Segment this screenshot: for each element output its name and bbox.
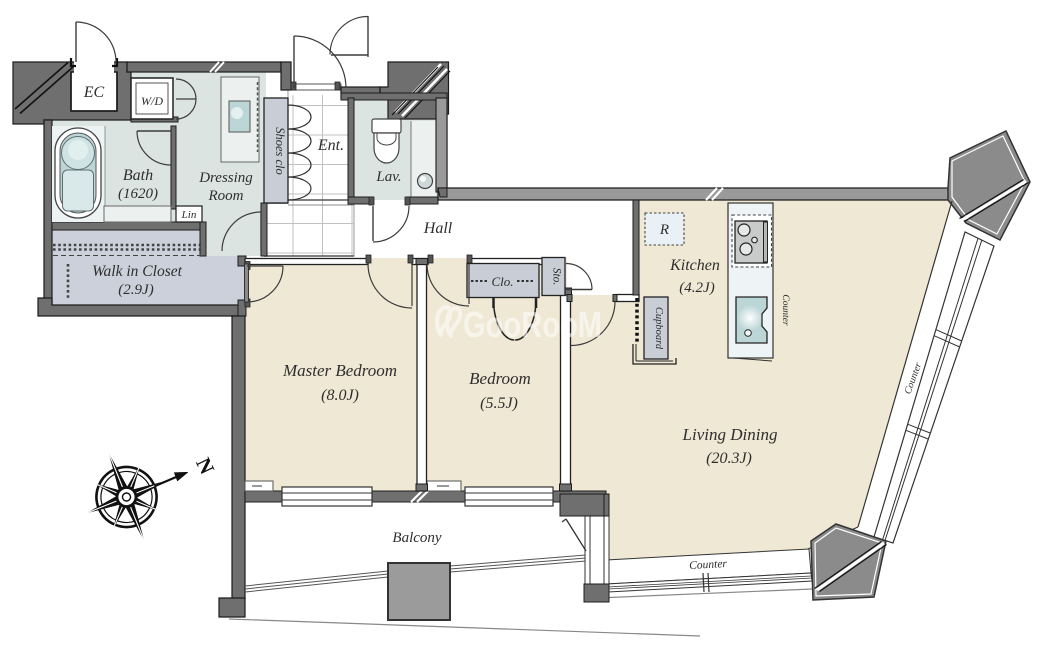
svg-text:Shoes clo: Shoes clo [273, 127, 287, 175]
svg-text:Hall: Hall [423, 220, 453, 237]
svg-text:(8.0J): (8.0J) [321, 387, 359, 404]
svg-text:Lin: Lin [181, 209, 197, 221]
svg-text:W/D: W/D [141, 94, 163, 108]
svg-text:GooRooM: GooRooM [463, 304, 602, 345]
svg-text:Balcony: Balcony [392, 530, 441, 546]
svg-text:Master Bedroom: Master Bedroom [282, 361, 397, 380]
svg-text:R: R [659, 222, 669, 238]
svg-text:Kitchen: Kitchen [669, 257, 720, 274]
svg-text:Sto.: Sto. [551, 268, 563, 286]
svg-text:Walk in Closet: Walk in Closet [92, 263, 183, 280]
svg-text:(2.9J): (2.9J) [118, 282, 153, 298]
svg-text:(5.5J): (5.5J) [480, 395, 518, 412]
svg-text:(4.2J): (4.2J) [679, 280, 714, 296]
svg-text:Bath: Bath [123, 167, 153, 184]
svg-text:Cupboard: Cupboard [653, 307, 664, 350]
svg-text:Ent.: Ent. [317, 137, 344, 154]
svg-text:EC: EC [83, 84, 105, 101]
svg-text:Bedroom: Bedroom [469, 369, 531, 388]
svg-text:Clo.: Clo. [491, 274, 513, 289]
svg-text:(20.3J): (20.3J) [706, 450, 752, 467]
svg-text:Lav.: Lav. [375, 169, 401, 185]
svg-text:Counter: Counter [780, 294, 790, 325]
svg-text:(1620): (1620) [118, 186, 158, 202]
svg-text:Room: Room [208, 188, 244, 204]
svg-text:Living Dining: Living Dining [682, 425, 778, 444]
svg-text:Counter: Counter [689, 558, 728, 572]
svg-text:Dressing: Dressing [198, 170, 253, 186]
